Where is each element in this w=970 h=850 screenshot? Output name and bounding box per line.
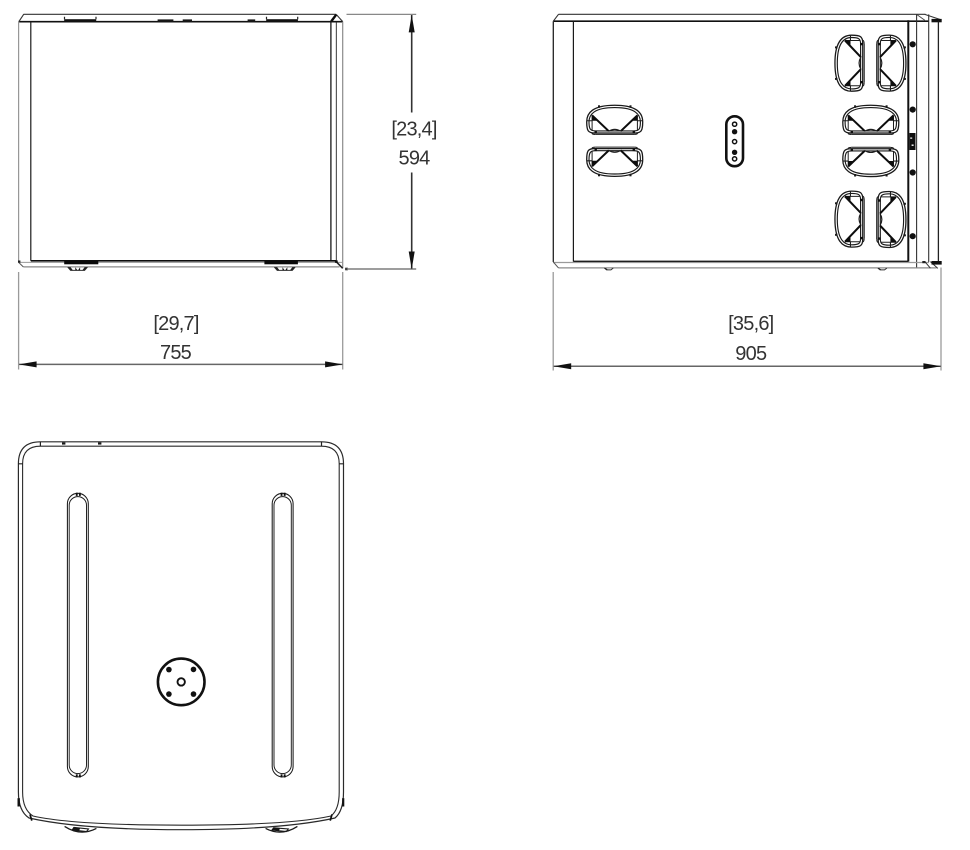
svg-text:755: 755 bbox=[160, 342, 192, 364]
svg-text:594: 594 bbox=[399, 148, 431, 170]
svg-text:[29,7]: [29,7] bbox=[153, 313, 198, 335]
svg-text:[35,6]: [35,6] bbox=[728, 313, 773, 335]
svg-text:905: 905 bbox=[735, 343, 767, 365]
svg-text:[23,4]: [23,4] bbox=[391, 118, 436, 140]
